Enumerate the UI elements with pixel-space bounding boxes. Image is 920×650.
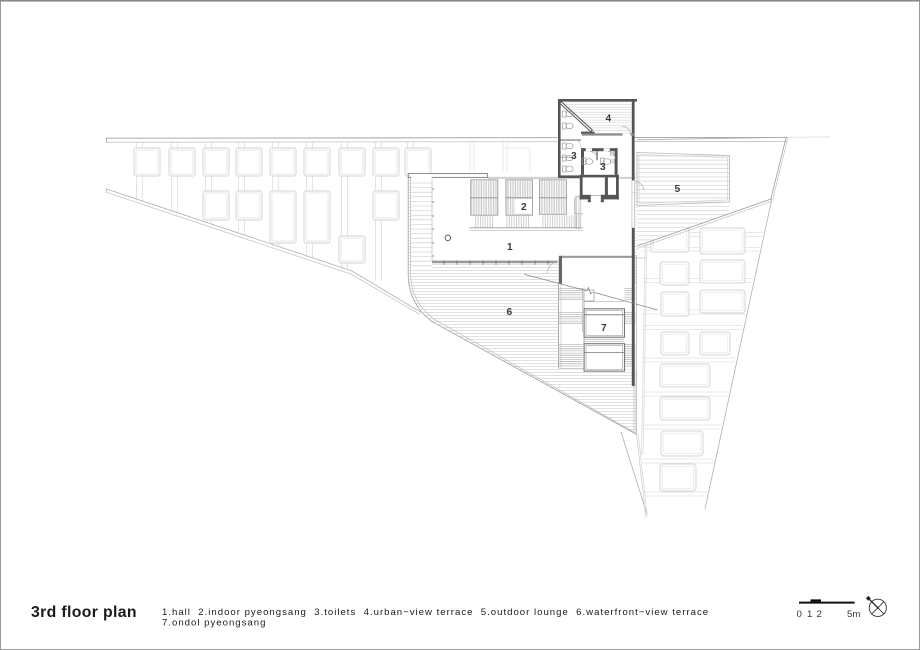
svg-text:5m: 5m — [847, 609, 860, 620]
svg-text:1: 1 — [807, 609, 812, 620]
svg-text:0: 0 — [797, 609, 802, 620]
svg-text:6: 6 — [507, 307, 513, 318]
svg-text:3rd floor plan: 3rd floor plan — [31, 604, 137, 621]
svg-text:4: 4 — [606, 114, 612, 125]
svg-text:5: 5 — [675, 184, 681, 195]
svg-text:7.ondol pyeongsang: 7.ondol pyeongsang — [162, 618, 266, 629]
svg-text:2: 2 — [521, 202, 527, 213]
svg-text:3: 3 — [571, 151, 577, 162]
svg-text:1: 1 — [507, 242, 513, 253]
svg-text:7: 7 — [601, 323, 607, 334]
svg-text:1.hall 2.indoor pyeongsang 3: 1.hall 2.indoor pyeongsang 3.toilets 4.u… — [162, 607, 709, 618]
svg-text:2: 2 — [817, 609, 822, 620]
svg-text:3: 3 — [600, 162, 606, 173]
